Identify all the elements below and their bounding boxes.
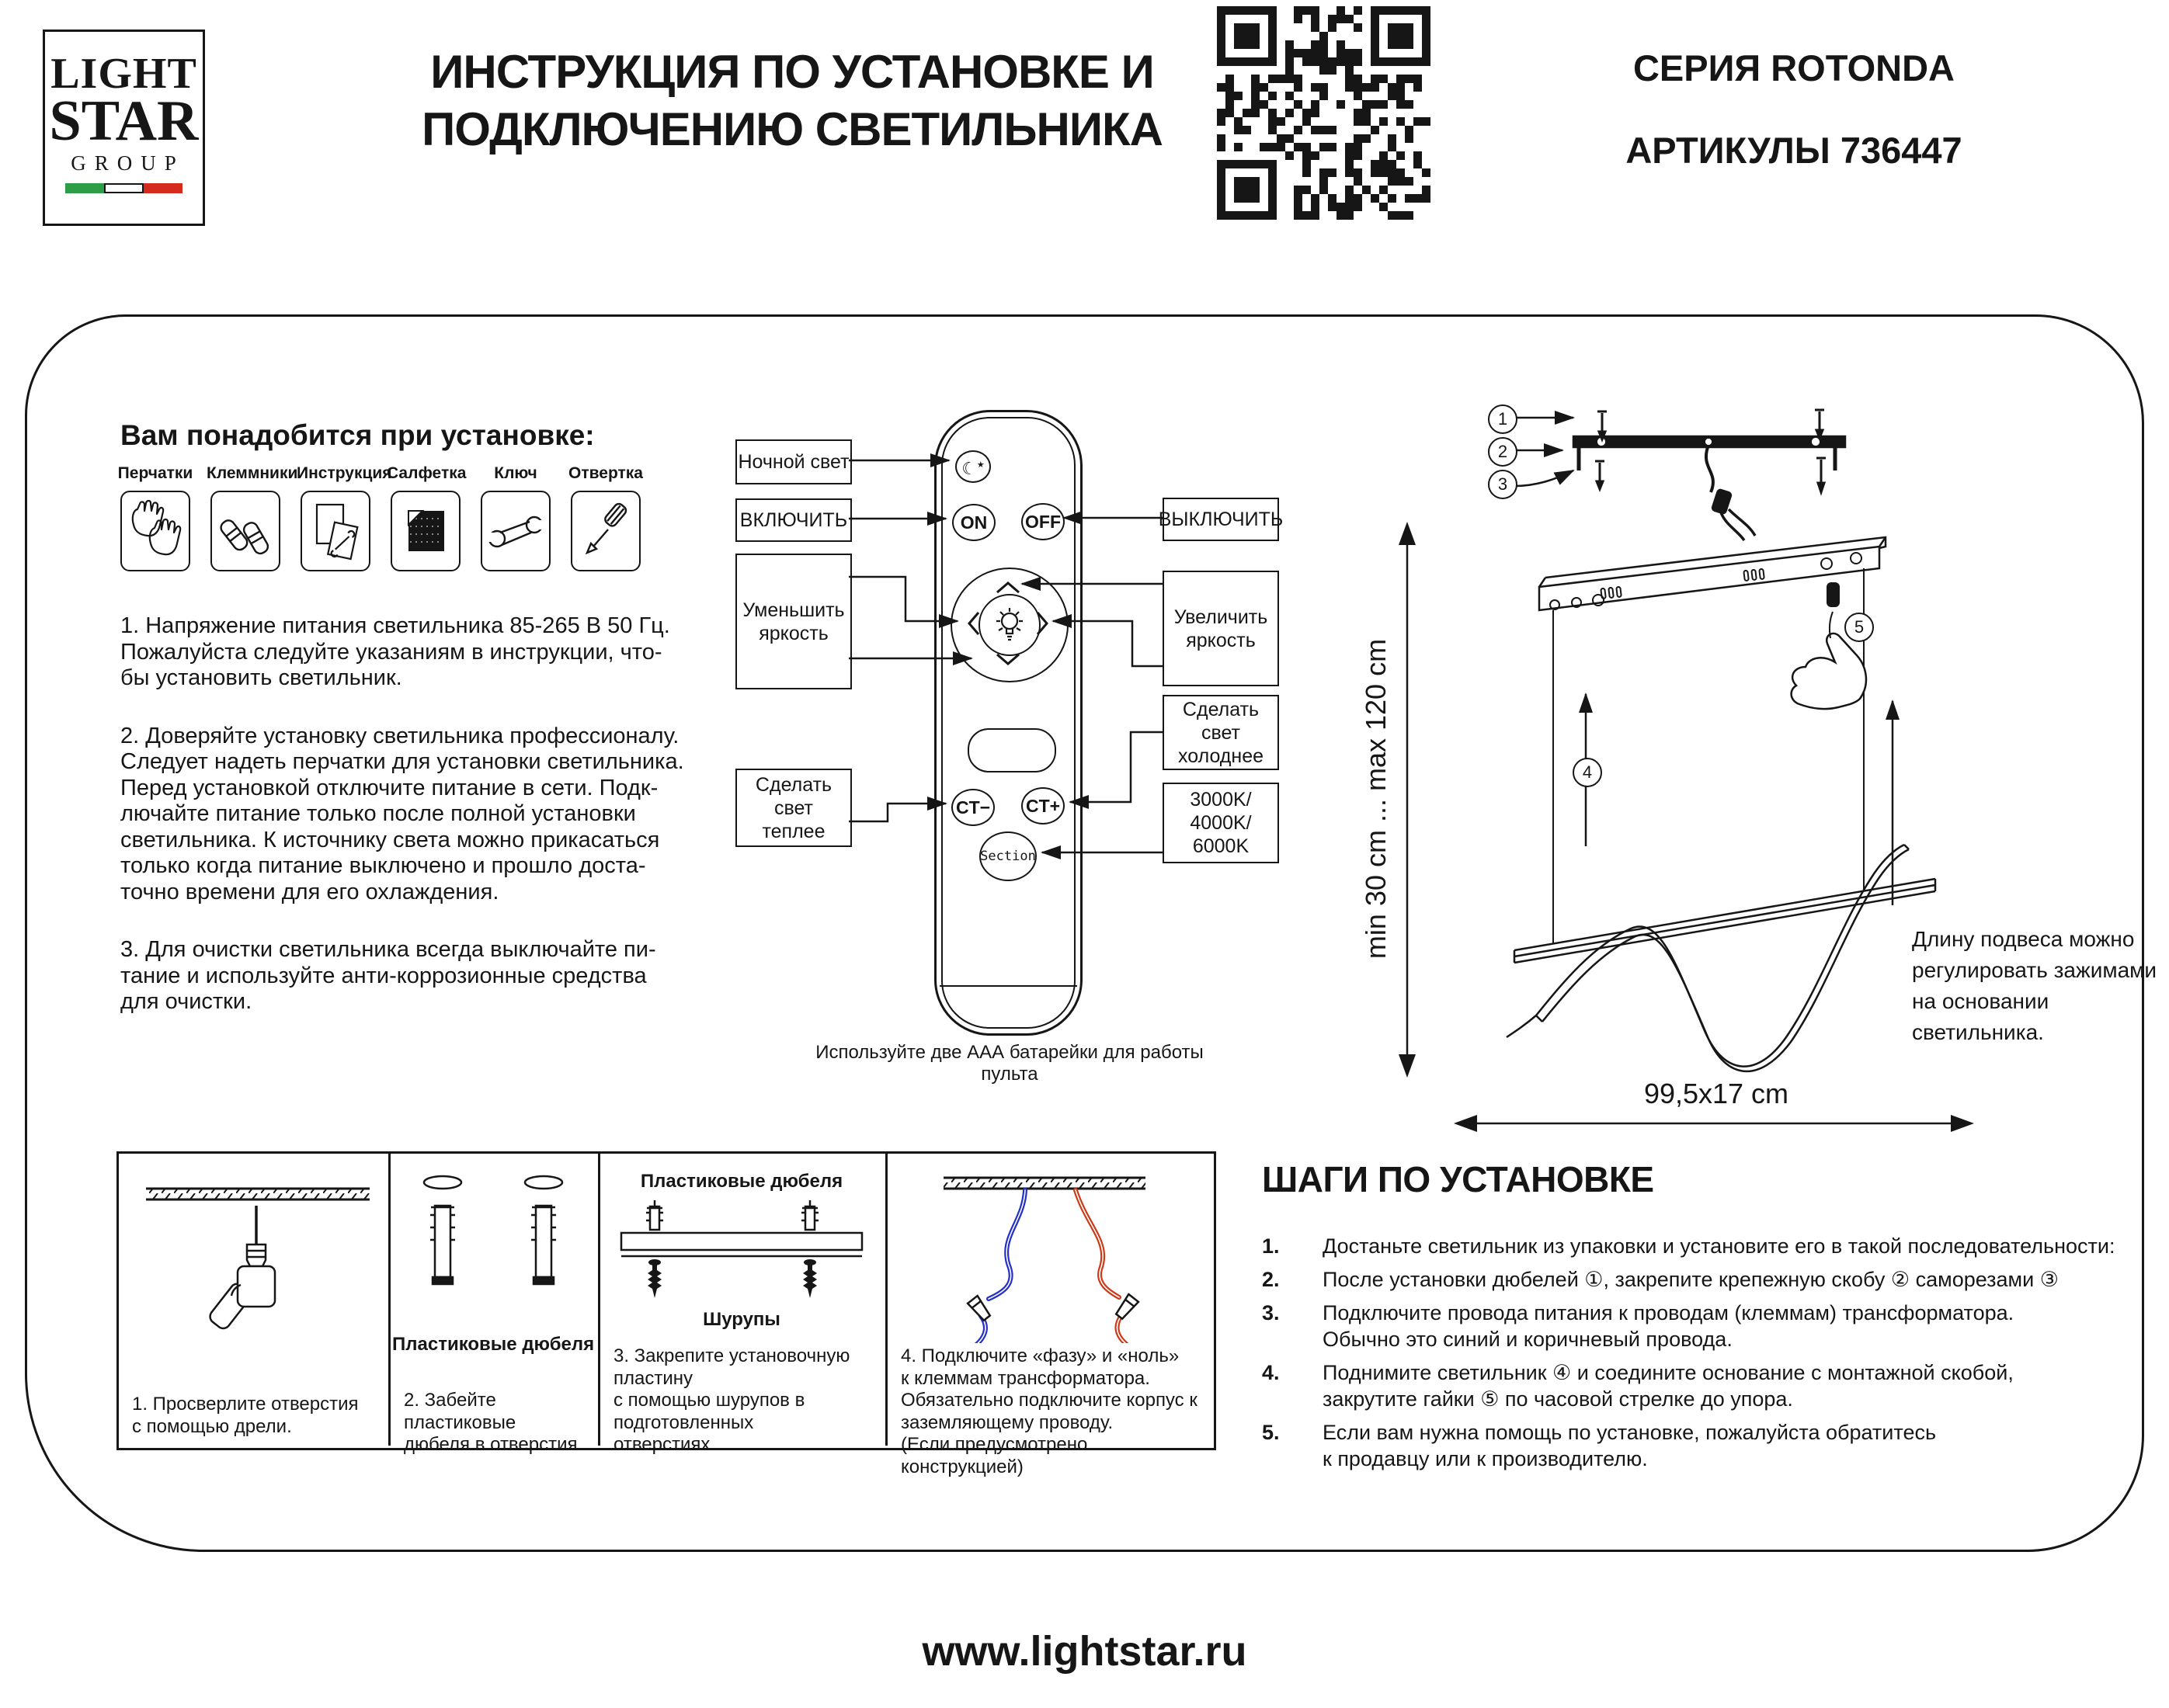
step-text: Подключите провода питания к проводам (к… [1323, 1300, 2151, 1352]
lightstar-logo: LIGHT STAR GROUP [43, 30, 205, 226]
drill-icon [124, 1161, 381, 1355]
step-row-5: 5. Если вам нужна помощь по установке, п… [1262, 1419, 2151, 1472]
step-row-2: 2. После установки дюбелей ①, закрепите … [1262, 1266, 2151, 1293]
napkin-icon [398, 498, 454, 564]
step-text: После установки дюбелей ①, закрепите кре… [1323, 1266, 2151, 1293]
step-row-1: 1. Достаньте светильник из упаковки и ус… [1262, 1233, 2151, 1259]
step-text: Поднимите светильник ④ и соедините основ… [1323, 1359, 2151, 1412]
panel-label-dowels: Пластиковые дюбеля [392, 1334, 594, 1356]
remote-leader-lines [699, 388, 1320, 932]
note-paragraph-1: 1. Напряжение питания светильника 85-265… [120, 613, 734, 692]
step-row-4: 4. Поднимите светильник ④ и соедините ос… [1262, 1359, 2151, 1412]
page-title: ИНСТРУКЦИЯ ПО УСТАНОВКЕ И ПОДКЛЮЧЕНИЮ СВ… [373, 43, 1211, 158]
steps-list: 1. Достаньте светильник из упаковки и ус… [1262, 1233, 2151, 1479]
panel-label-dowels-top: Пластиковые дюбеля [602, 1171, 881, 1192]
marker-4: 4 [1573, 758, 1602, 787]
step-number: 1. [1262, 1233, 1323, 1259]
articles-label: АРТИКУЛЫ 736447 [1507, 129, 2081, 172]
step-number: 2. [1262, 1266, 1323, 1293]
marker-2: 2 [1488, 437, 1517, 467]
wrench-icon [486, 498, 545, 564]
marker-5: 5 [1844, 613, 1874, 642]
tool-label: Клеммники [207, 464, 284, 491]
adjust-note: Длину подвеса можно регулировать зажимам… [1912, 924, 2168, 1048]
note-paragraph-2: 2. Доверяйте установку светильника профе… [120, 724, 734, 906]
tool-item-screwdriver: Отвертка [567, 464, 645, 571]
tool-item-manual: Инструкция [297, 464, 374, 571]
height-range-label: min 30 cm ... max 120 cm [1360, 636, 1392, 962]
wires-icon [889, 1161, 1208, 1343]
step-row-3: 3. Подключите провода питания к проводам… [1262, 1300, 2151, 1352]
step-text: Если вам нужна помощь по установке, пожа… [1323, 1419, 2151, 1472]
instruction-sheet: LIGHT STAR GROUP ИНСТРУКЦИЯ ПО УСТАНОВКЕ… [0, 0, 2169, 1708]
mounting-plate-icon [602, 1196, 881, 1304]
panel-divider [885, 1151, 888, 1446]
tools-row: Перчатки Клеммники [116, 464, 645, 571]
marker-3: 3 [1488, 470, 1517, 499]
size-label: 99,5x17 cm [1573, 1078, 1860, 1110]
gloves-icon [127, 498, 183, 564]
tool-label: Ключ [477, 464, 554, 491]
panel-divider [598, 1151, 600, 1446]
marker-1: 1 [1488, 404, 1517, 434]
tool-item-gloves: Перчатки [116, 464, 194, 571]
battery-cover-line [940, 985, 1077, 987]
manual-icon [308, 498, 363, 564]
series-label: СЕРИЯ ROTONDA [1507, 47, 2081, 89]
note-paragraph-3: 3. Для очистки светильника всегда выключ… [120, 937, 734, 1015]
panel-divider [388, 1151, 391, 1446]
step-number: 3. [1262, 1300, 1323, 1352]
qr-code [1217, 6, 1430, 220]
panel-caption-3: 3. Закрепите установочную пластину с пом… [614, 1345, 878, 1456]
tool-label: Перчатки [116, 464, 194, 491]
terminals-icon [217, 498, 273, 564]
steps-heading: ШАГИ ПО УСТАНОВКЕ [1262, 1158, 1961, 1200]
panel-label-screws: Шурупы [602, 1309, 881, 1331]
screwdriver-icon [578, 498, 634, 564]
panel-caption-2: 2. Забейте пластиковые дюбеля в отверсти… [404, 1390, 590, 1456]
tool-label: Инструкция [297, 464, 374, 491]
italian-flag-icon [65, 183, 183, 193]
logo-group: GROUP [53, 151, 203, 175]
step-text: Достаньте светильник из упаковки и устан… [1323, 1233, 2151, 1259]
battery-note: Используйте две ААА батарейки для работы… [792, 1042, 1227, 1085]
logo-star: STAR [45, 95, 203, 147]
dowel-icon [392, 1161, 594, 1339]
tool-item-wrench: Ключ [477, 464, 554, 571]
tool-label: Отвертка [567, 464, 645, 491]
tools-heading: Вам понадобится при установке: [120, 419, 742, 452]
tool-label: Салфетка [387, 464, 464, 491]
safety-notes: 1. Напряжение питания светильника 85-265… [120, 613, 734, 1047]
tool-item-terminals: Клеммники [207, 464, 284, 571]
footer-url: www.lightstar.ru [0, 1627, 2169, 1675]
panel-caption-4: 4. Подключите «фазу» и «ноль» к клеммам … [901, 1345, 1204, 1478]
panel-caption-1: 1. Просверлите отверстия с помощью дрели… [132, 1394, 381, 1438]
step-number: 5. [1262, 1419, 1323, 1472]
step-number: 4. [1262, 1359, 1323, 1412]
tool-item-napkin: Салфетка [387, 464, 464, 571]
